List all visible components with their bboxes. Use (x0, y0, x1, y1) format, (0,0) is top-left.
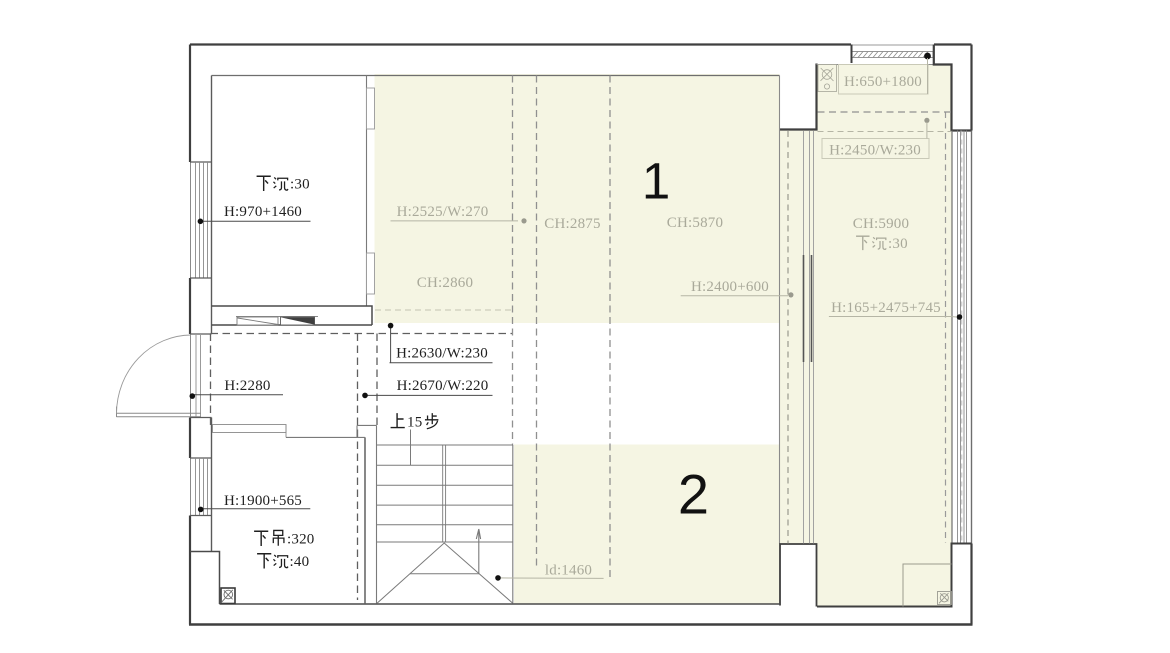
svg-text:1: 1 (642, 153, 670, 210)
svg-text::40: :40 (290, 554, 310, 570)
svg-text::30: :30 (290, 177, 310, 193)
svg-text:H:2450/W:230: H:2450/W:230 (829, 143, 921, 159)
svg-text:CH:5870: CH:5870 (667, 215, 723, 231)
svg-text::320: :320 (287, 532, 314, 548)
svg-text:H:2670/W:220: H:2670/W:220 (397, 378, 489, 394)
svg-text:H:165+2475+745: H:165+2475+745 (831, 300, 941, 316)
svg-text:H:2400+600: H:2400+600 (691, 279, 769, 295)
svg-text:H:2525/W:270: H:2525/W:270 (397, 204, 489, 220)
svg-text:2: 2 (678, 463, 709, 526)
svg-text:15: 15 (407, 415, 422, 431)
svg-text:CH:5900: CH:5900 (853, 216, 909, 232)
svg-text:CH:2860: CH:2860 (417, 275, 473, 291)
svg-text::30: :30 (888, 236, 908, 252)
svg-text:H:970+1460: H:970+1460 (224, 204, 302, 220)
svg-text:H:2280: H:2280 (224, 378, 270, 394)
svg-text:H:1900+565: H:1900+565 (224, 493, 302, 509)
svg-text:ld:1460: ld:1460 (545, 563, 592, 579)
svg-text:H:650+1800: H:650+1800 (844, 74, 922, 90)
svg-text:H:2630/W:230: H:2630/W:230 (396, 346, 488, 362)
svg-text:CH:2875: CH:2875 (544, 216, 600, 232)
